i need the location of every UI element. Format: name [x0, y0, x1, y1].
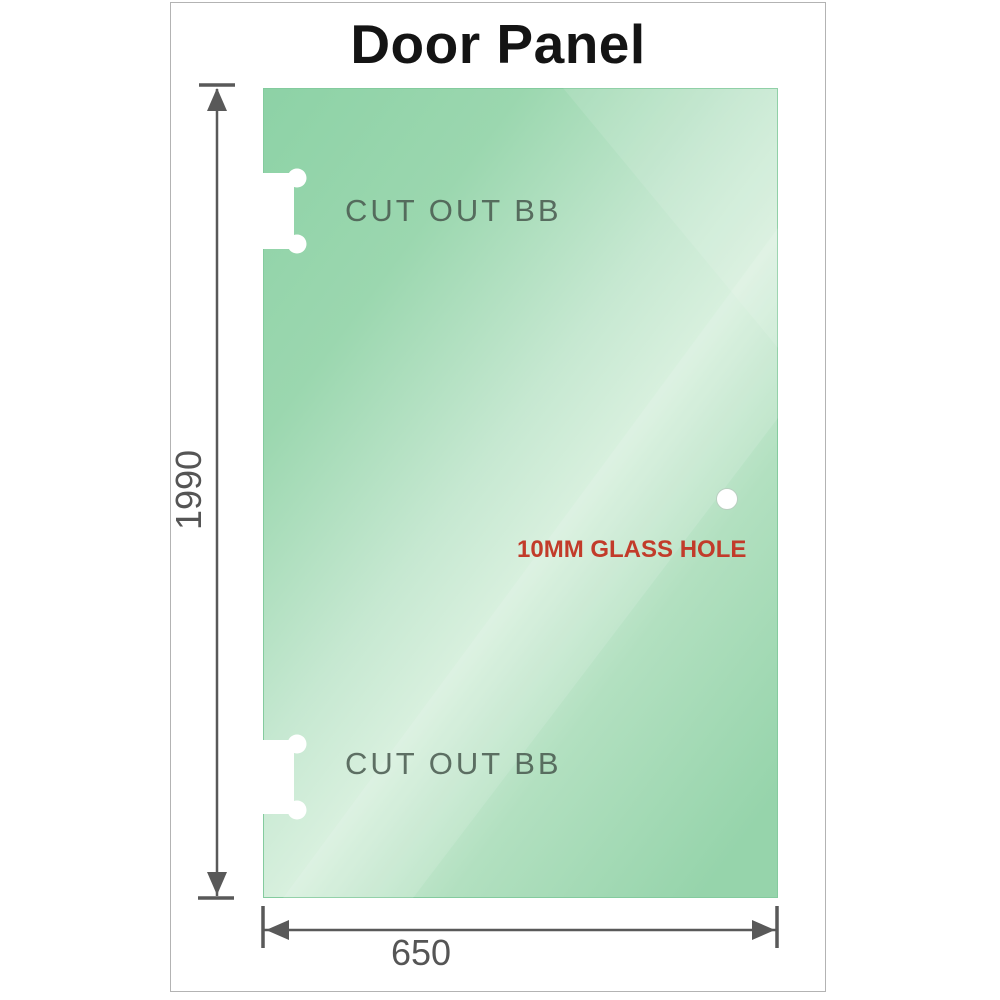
width-dimension-line	[263, 906, 777, 948]
cutout-bottom-label: CUT OUT BB	[345, 748, 562, 779]
page-title: Door Panel	[171, 15, 825, 73]
height-dimension-value: 1990	[169, 430, 209, 550]
diagram-stage: Door Panel	[0, 0, 1000, 1000]
width-dimension-value: 650	[361, 933, 481, 973]
cutout-top-label: CUT OUT BB	[345, 195, 562, 226]
diagram-frame: Door Panel	[170, 2, 826, 992]
glass-hole-label: 10MM GLASS HOLE	[517, 538, 746, 562]
glass-hole	[717, 489, 738, 510]
